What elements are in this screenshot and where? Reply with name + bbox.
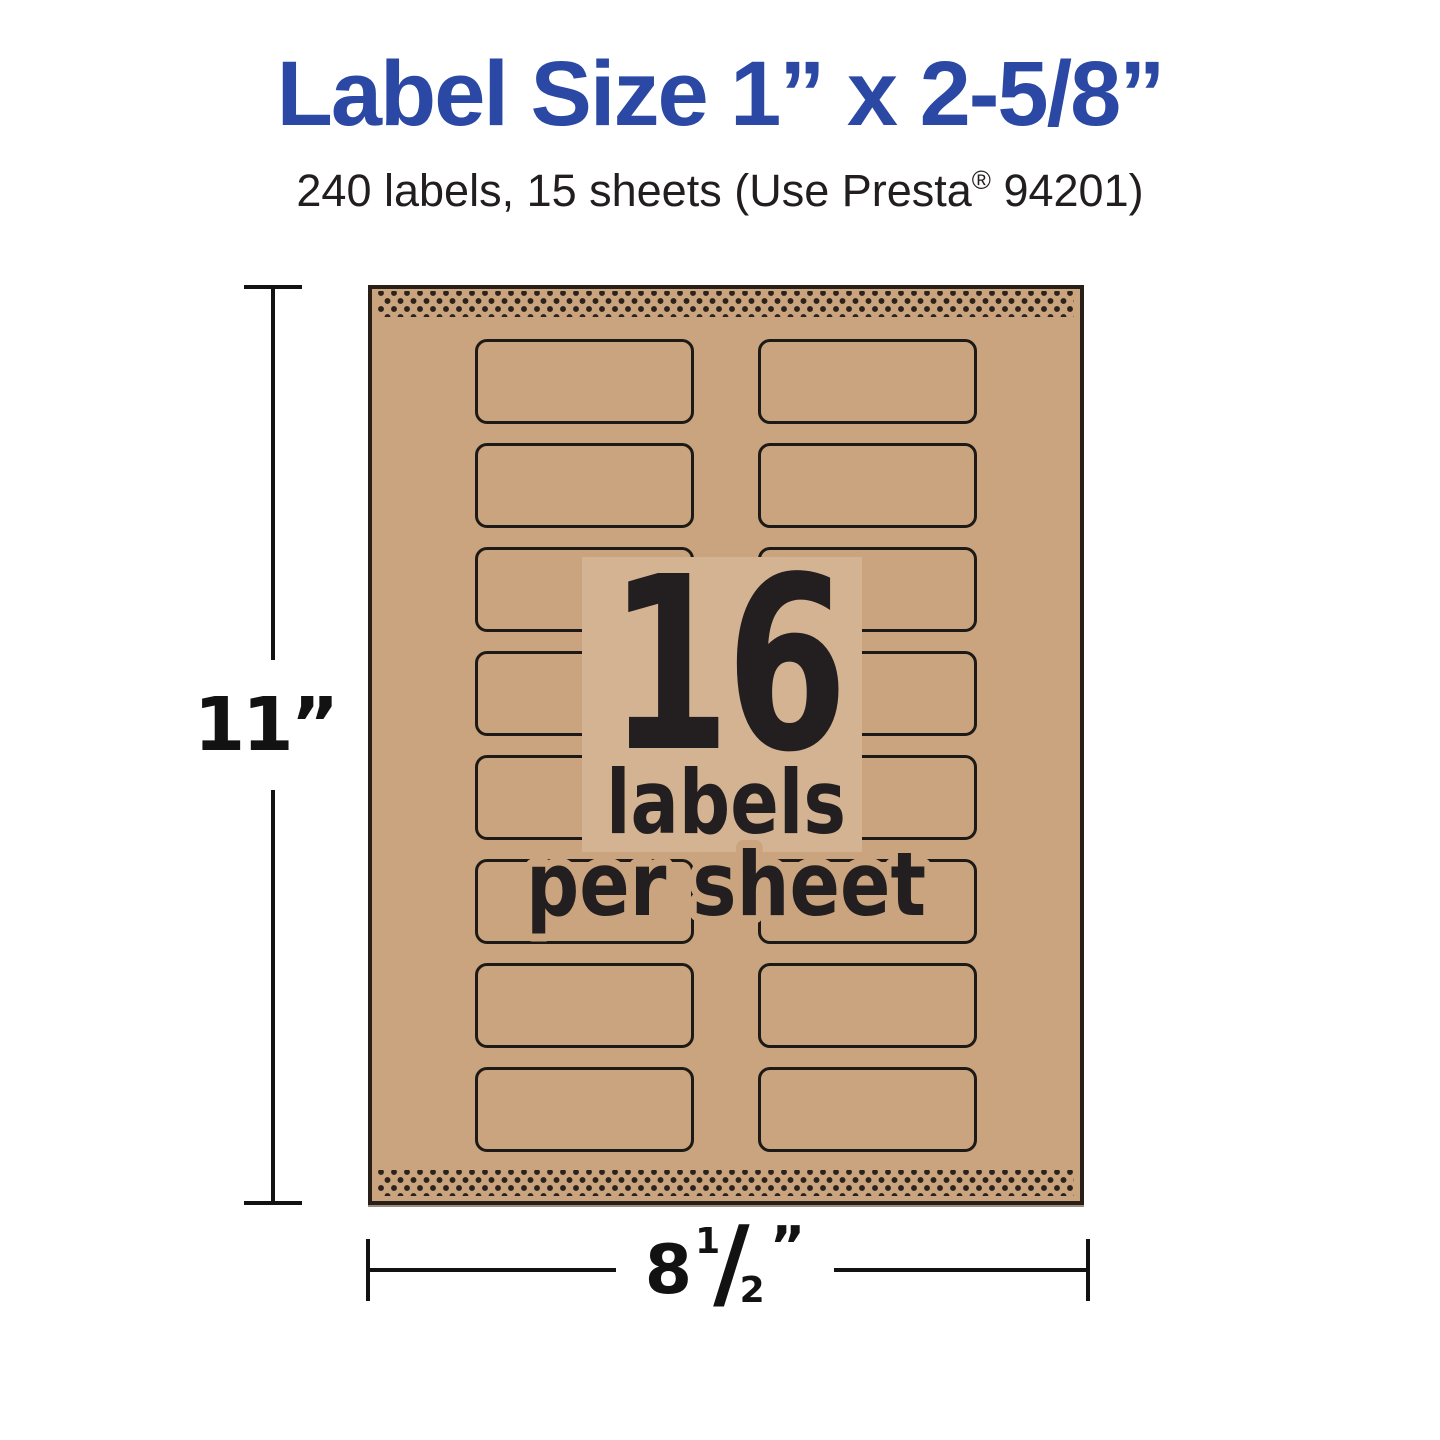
width-fraction-slash: / [713,1213,750,1313]
width-inch-mark: ” [770,1220,806,1274]
width-dimension-tick-right [1086,1239,1090,1301]
center-overlay: 16 labels per sheet [368,285,1084,1205]
height-dimension-tick-bottom [244,1201,302,1205]
label-sheet: 16 labels per sheet [368,285,1084,1205]
width-dimension-tick-left [366,1239,370,1301]
per-sheet-text: per sheet [526,833,926,936]
page-subtitle: 240 labels, 15 sheets (Use Presta® 94201… [0,166,1440,216]
height-dimension-tick-top [244,285,302,289]
product-diagram: Label Size 1” x 2-5/8” 240 labels, 15 sh… [0,0,1440,1440]
width-dimension-label: 8 1 / 2 ” [616,1208,834,1333]
height-dimension-label: 11” [183,660,347,790]
registered-mark: ® [972,165,991,195]
subtitle-text: 240 labels, 15 sheets (Use Presta [296,165,971,216]
width-whole-number: 8 [645,1237,692,1305]
page-title: Label Size 1” x 2-5/8” [0,48,1440,140]
subtitle-product-number: 94201) [991,165,1144,216]
